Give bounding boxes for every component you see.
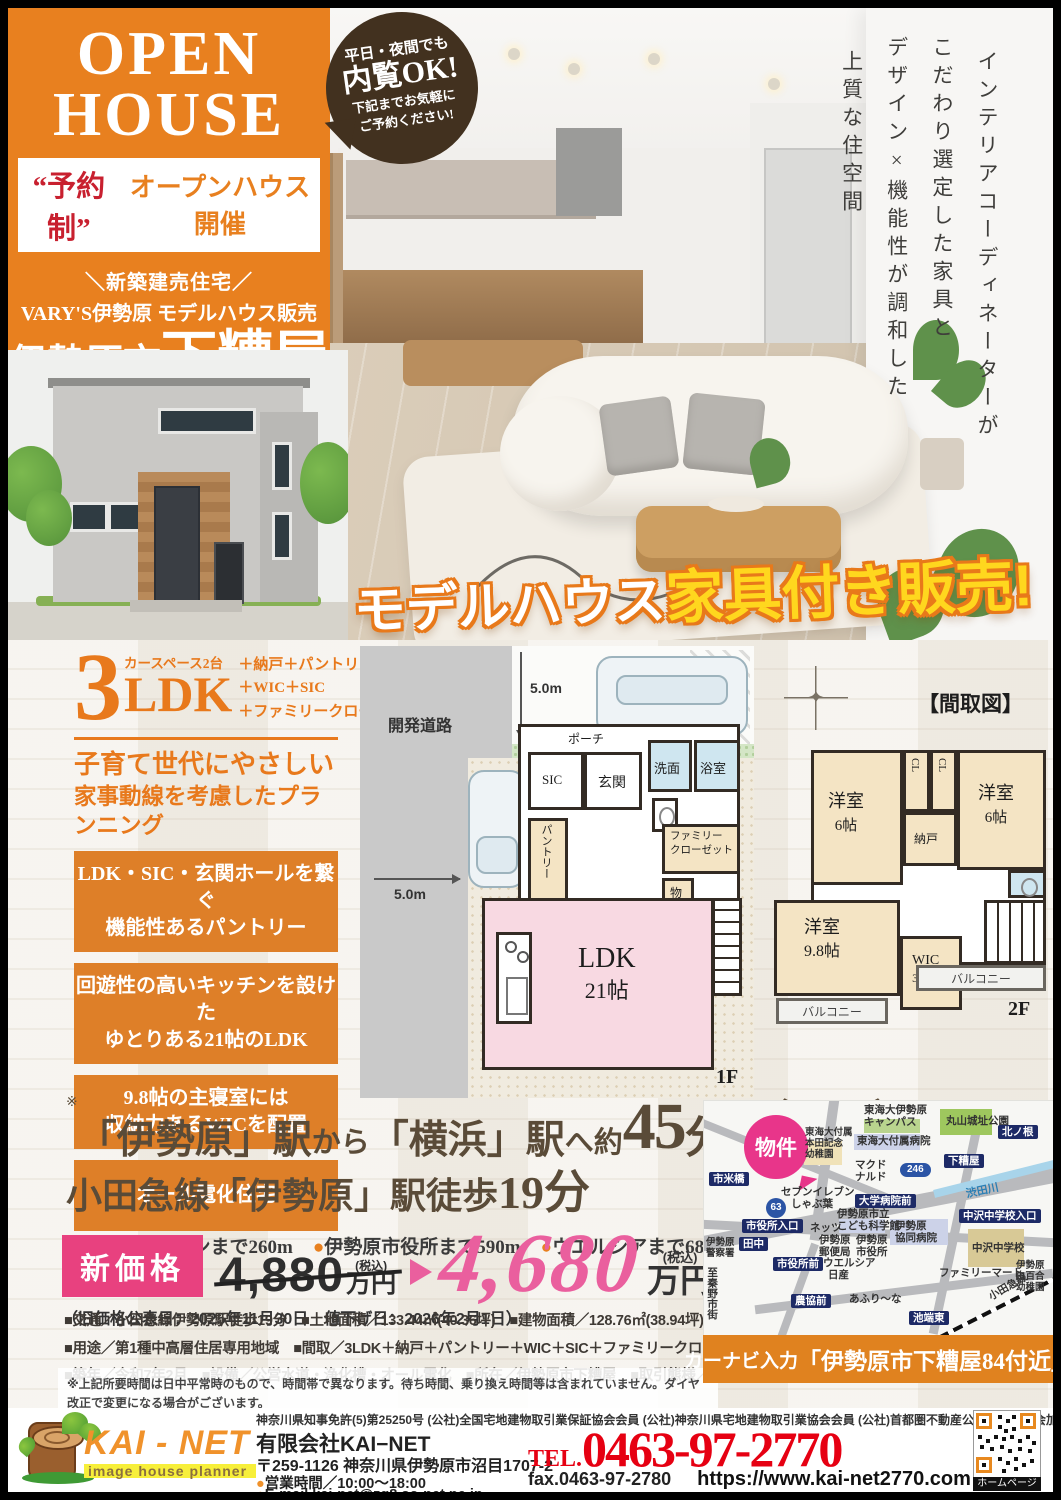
access-map: 物件 東海大伊勢原 キャンパス丸山城址公園北ノ根東海大付属 本田記念 幼稚園東海…: [703, 1100, 1053, 1337]
map-label: ウエルシア: [823, 1257, 876, 1269]
side-window: [272, 512, 292, 560]
map-label: 北ノ根: [998, 1125, 1038, 1139]
ldk-number: 3: [74, 648, 122, 727]
access-45: 45: [623, 1094, 685, 1160]
fax-number: fax.0463-97-2780: [528, 1469, 671, 1489]
new-price-number: 4,680: [437, 1230, 643, 1297]
carnavi-bar: カーナビ入力 「伊勢原市下糟屋84付近」: [703, 1335, 1053, 1383]
feature-text: 機能性あるパントリー: [76, 915, 336, 942]
map-label: 伊勢原 警察署: [706, 1238, 735, 1260]
closet-cl2-label: CL: [936, 758, 948, 772]
room-pantry-label: パントリー: [538, 824, 554, 879]
map-label: 伊勢原市立 こども科学館: [837, 1208, 900, 1232]
vertical-copy-line: インテリアコーディネーターが: [964, 50, 1009, 516]
map-label: 63: [766, 1198, 786, 1218]
headline-model-house: モデルハウス: [353, 572, 667, 640]
footer: KAI - NET image house planner 神奈川県知事免許(5…: [8, 1408, 1053, 1492]
kainet-logo: KAI - NET image house planner: [22, 1414, 257, 1488]
map-label: 日産: [828, 1269, 849, 1281]
ceiling-light: [568, 63, 580, 75]
stairs-2f: [984, 900, 1046, 964]
vertical-copy-line: 上質な住空間: [828, 50, 873, 516]
map-label: 伊勢原 協同病院: [895, 1220, 937, 1244]
floor-label-2f: 2F: [1008, 998, 1030, 1021]
access-note-mark: ※: [66, 1096, 78, 1110]
map-label: 東海大付属 本田記念 幼稚園: [805, 1128, 853, 1161]
room-senmen-label: 洗面: [654, 758, 680, 777]
map-label: 246: [900, 1163, 931, 1177]
disclaimer-line: ※上記所要時間は日中平常時のもので、時間帯で異なります。待ち時間、乗り換え時間等…: [67, 1375, 709, 1412]
logo-text: KAI - NET: [84, 1424, 250, 1463]
window: [70, 502, 108, 532]
balcony-right: バルコニー: [916, 965, 1046, 991]
map-label: 市米橋: [709, 1172, 749, 1186]
qr-code: [973, 1410, 1041, 1478]
old-price-unit: (税込) 万円: [346, 1260, 396, 1297]
map-label: 田中: [739, 1237, 768, 1251]
room-porch: ポーチ: [568, 730, 604, 747]
map-label: 中沢中学校入口: [959, 1209, 1041, 1223]
map-label: 市役所前: [773, 1257, 823, 1271]
floor-label-1f: 1F: [716, 1066, 738, 1089]
ceiling-light: [648, 53, 660, 65]
map-label: 市役所入口: [742, 1219, 803, 1233]
dimension-5m-top: 5.0m: [530, 680, 562, 696]
catch-copy-line1: 子育て世代にやさしい: [74, 748, 338, 782]
floorplan-1f: 開発道路 5.0m 5.0m ポーチ SIC 玄関 洗面 浴室 パントリー ファ…: [360, 646, 760, 1098]
slit-window: [158, 408, 256, 434]
open-house-held-label: オープンハウス開催: [122, 167, 318, 241]
range-hood: [556, 128, 622, 216]
vertical-copy-line: デザイン×機能性が調和した: [874, 36, 919, 516]
gray-cushion: [598, 395, 679, 476]
hero-section: インテリアコーディネーターが こだわり選定した家具と デザイン×機能性が調和した…: [8, 8, 1053, 640]
room-ldk-label: LDK21帖: [578, 944, 636, 1006]
ldk-label: LDK: [124, 666, 232, 722]
ceiling-light: [768, 78, 780, 90]
dimension-5m-left: 5.0m: [394, 886, 426, 902]
property-marker: 物件: [744, 1115, 808, 1179]
room-bath-label: 浴室: [700, 758, 726, 777]
feature-text: ゆとりある21帖のLDK: [76, 1027, 336, 1054]
map-label: 大学病院前: [855, 1194, 916, 1208]
homepage-caption: ホームページ: [973, 1477, 1041, 1491]
feature-box-kitchen: 回遊性の高いキッチンを設けた ゆとりある21帖のLDK: [74, 963, 338, 1064]
floorplan-2f: ✦ 【間取図】 洋室6帖 CL CL 洋室6帖 納戸 洋室9.8帖 WIC3.7…: [756, 660, 1053, 1080]
plan-title: 【間取図】: [918, 688, 1023, 718]
feature-box-pantry: LDK・SIC・玄関ホールを繋ぐ 機能性あるパントリー: [74, 851, 338, 952]
map-label: しゃぶ葉: [791, 1198, 833, 1210]
room-family-closet-label: ファミリークローゼット: [670, 830, 733, 857]
map-label: マクド ナルド: [855, 1159, 887, 1183]
feature-text: 回遊性の高いキッチンを設けた: [76, 973, 336, 1027]
detail-line: ■用途／第1種中高層住居専用地域 ■間取／3LDK＋納戸＋パントリー＋WIC＋S…: [64, 1336, 719, 1364]
open-house-title-line2: HOUSE: [8, 85, 330, 146]
access-yokohama: 「横浜」駅: [370, 1121, 565, 1160]
map-label: 東海大伊勢原 キャンパス: [864, 1104, 927, 1128]
website-url: https://www.kai-net2770.com: [697, 1468, 971, 1490]
headline-furnished-sale: 家具付き販売!: [664, 553, 1033, 631]
map-label: 下糟屋: [944, 1154, 984, 1168]
new-price-tag: 新価格: [62, 1235, 203, 1297]
old-price: 4,880 (税込) 万円: [219, 1254, 396, 1297]
access-line1: ※ 「伊勢原」駅 から 「横浜」駅 へ約 45 分 （ 小田急線利用 海老名駅よ…: [66, 1094, 714, 1160]
table-tray: [708, 496, 764, 512]
reservation-banner: “予約制” オープンハウス開催: [18, 158, 320, 252]
access-line2: 小田急線「伊勢原」駅徒歩19分: [66, 1170, 714, 1216]
map-label: 中沢中学校: [972, 1242, 1025, 1254]
feature-text: LDK・SIC・玄関ホールを繋ぐ: [76, 861, 336, 915]
access-19min: 19分: [498, 1167, 590, 1218]
tree: [300, 442, 348, 524]
vertical-copy: インテリアコーディネーターが こだわり選定した家具と デザイン×機能性が調和した…: [828, 36, 1009, 516]
map-label: 池端東: [909, 1311, 949, 1325]
new-build-label: ＼新築建売住宅／: [8, 266, 330, 295]
logo-subtext: image house planner: [88, 1463, 247, 1479]
varys-model-label: VARY'S伊勢原 モデルハウス販売: [8, 297, 330, 326]
reservation-label: “予約制”: [20, 163, 118, 247]
toilet-2f: [1008, 870, 1046, 898]
map-label: セブンイレブン: [781, 1186, 855, 1198]
open-house-panel: OPEN HOUSE “予約制” オープンハウス開催 ＼新築建売住宅／ VARY…: [8, 8, 330, 350]
dimension-arrow-right: [374, 878, 460, 880]
arrow-icon: [410, 1259, 432, 1285]
house-exterior-photo: [8, 350, 348, 640]
ceiling-light: [508, 48, 520, 60]
room-genkan-label: 玄関: [598, 772, 626, 792]
map-label: あふり〜な: [849, 1293, 902, 1305]
open-house-title-line1: OPEN: [8, 24, 330, 85]
carnavi-address: 「伊勢原市下糟屋84付近」: [798, 1342, 1053, 1376]
access-kara: から: [312, 1129, 370, 1160]
side-window: [272, 442, 292, 490]
map-label: 至秦野市街: [706, 1267, 718, 1320]
access-walk: 小田急線「伊勢原」駅徒歩: [66, 1176, 498, 1216]
map-label: 農協前: [791, 1294, 831, 1308]
room-nando-label: 納戸: [914, 830, 938, 847]
price-row: 新価格 4,880 (税込) 万円 4,680 (税込) 万円: [62, 1230, 722, 1297]
compass-icon: ✦: [784, 666, 848, 730]
kitchen-island: [496, 932, 532, 1024]
road-label: 開発道路: [388, 712, 452, 736]
room-yoshitsu-b-label: 洋室6帖: [978, 782, 1014, 827]
ldk-mid: カースペース2台 LDK: [124, 648, 232, 717]
map-label: 伊勢原 郵便局: [819, 1234, 851, 1258]
balcony-left: バルコニー: [776, 998, 888, 1024]
closet-cl1-label: CL: [909, 758, 921, 772]
room-sic-label: SIC: [542, 772, 562, 788]
model-house-signboard: [214, 542, 244, 604]
carnavi-label: カーナビ入力: [684, 1346, 798, 1373]
tree: [26, 490, 72, 546]
map-label: 東海大付属病院: [857, 1135, 931, 1147]
catch-copy-line2: 家事動線を考慮したプランニング: [74, 782, 338, 841]
map-label: 伊勢原 市役所: [856, 1234, 888, 1258]
kitchen-counter: [343, 270, 643, 345]
flyer-page: インテリアコーディネーターが こだわり選定した家具と デザイン×機能性が調和した…: [8, 8, 1053, 1492]
porch-step: [130, 600, 242, 612]
map-canvas: 物件 東海大伊勢原 キャンパス丸山城址公園北ノ根東海大付属 本田記念 幼稚園東海…: [704, 1101, 1053, 1336]
room-master-label: 洋室9.8帖: [804, 916, 840, 962]
front-door: [154, 486, 200, 606]
ldk-headline: 3 カースペース2台 LDK ＋納戸＋パントリー ＋WIC＋SIC ＋ファミリー…: [74, 648, 338, 727]
access-isehara: 「伊勢原」駅: [78, 1121, 312, 1160]
fax-url-row: fax.0463-97-2780https://www.kai-net2770.…: [528, 1468, 971, 1491]
room-yoshitsu-a-label: 洋室6帖: [828, 790, 864, 835]
access-eyaku: へ約: [565, 1129, 623, 1160]
detail-line: ■交通／小田急線伊勢原駅徒歩19分 ■土地面積／133.44㎡(40.36坪) …: [64, 1308, 719, 1336]
stairs-1f: [712, 898, 742, 996]
email-line: ●E-mail kai-net@zg8.so-net.ne.jp: [256, 1487, 483, 1492]
vertical-copy-line: こだわり選定した家具と: [919, 36, 964, 516]
